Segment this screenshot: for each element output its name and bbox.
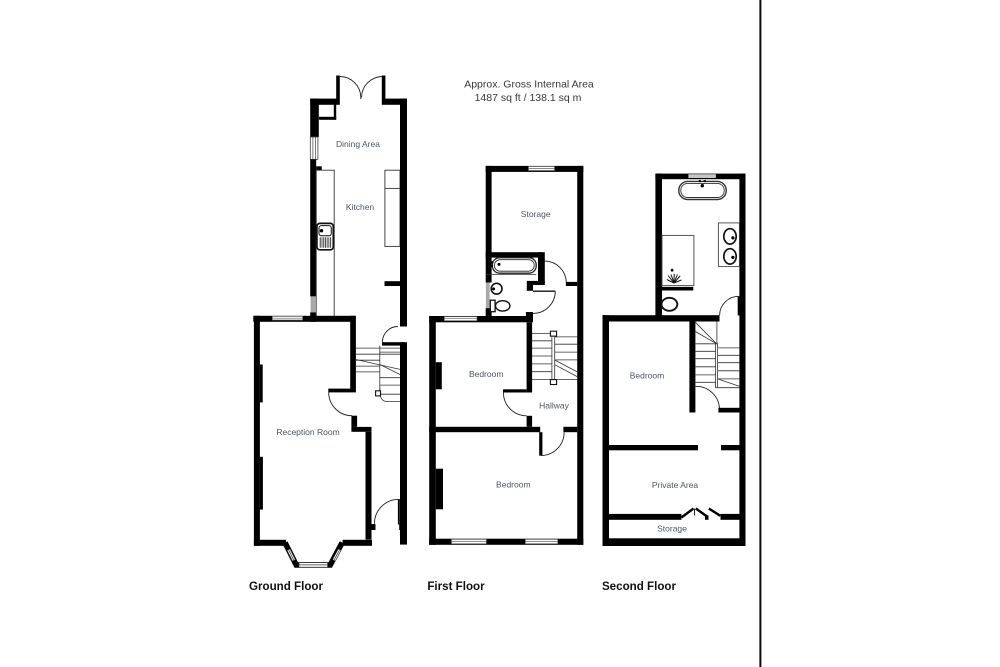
svg-text:Reception Room: Reception Room [276,427,339,437]
svg-text:First Floor: First Floor [427,580,485,593]
svg-text:Approx. Gross Internal Area: Approx. Gross Internal Area [464,79,594,91]
svg-text:Bedroom: Bedroom [496,480,531,490]
svg-text:Storage: Storage [521,209,551,219]
svg-text:Bedroom: Bedroom [469,369,504,379]
svg-text:Storage: Storage [657,524,687,534]
svg-text:Hallway: Hallway [539,401,570,411]
svg-text:Ground Floor: Ground Floor [249,580,324,593]
svg-text:Second Floor: Second Floor [602,580,677,593]
svg-text:Private Area: Private Area [652,480,699,490]
svg-text:1487 sq ft / 138.1 sq m: 1487 sq ft / 138.1 sq m [475,92,582,104]
svg-text:Bedroom: Bedroom [630,370,665,380]
svg-text:Dining Area: Dining Area [336,139,380,149]
svg-text:Kitchen: Kitchen [346,202,375,212]
